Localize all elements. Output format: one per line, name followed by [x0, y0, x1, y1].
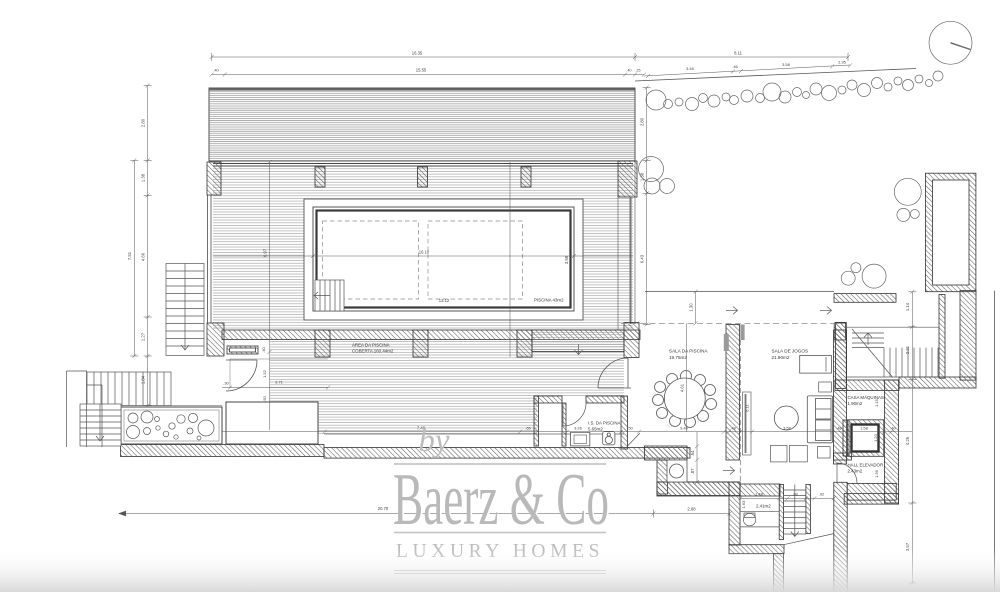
svg-text:SALA DE JOGOS: SALA DE JOGOS: [772, 349, 809, 354]
svg-text:3.58: 3.58: [782, 62, 791, 67]
svg-text:7.51: 7.51: [127, 251, 132, 260]
svg-text:by: by: [418, 423, 450, 459]
svg-text:.88: .88: [792, 491, 798, 496]
svg-text:.50: .50: [627, 426, 633, 431]
svg-text:1.52: 1.52: [262, 369, 267, 378]
svg-text:.46: .46: [732, 64, 738, 69]
svg-text:.40: .40: [261, 346, 266, 352]
svg-text:2.41m2: 2.41m2: [756, 504, 771, 509]
svg-text:3.98: 3.98: [564, 255, 569, 264]
svg-text:1.14: 1.14: [905, 302, 910, 311]
svg-text:19.75m2: 19.75m2: [669, 355, 687, 360]
svg-text:1.38: 1.38: [640, 172, 645, 181]
svg-text:13.12: 13.12: [439, 298, 450, 303]
svg-text:Baerz & Co: Baerz & Co: [393, 459, 609, 541]
svg-text:I.S. DA PISCINA: I.S. DA PISCINA: [588, 421, 621, 426]
svg-text:1.84: 1.84: [141, 375, 146, 384]
svg-text:.40: .40: [213, 68, 219, 73]
svg-text:6.11: 6.11: [745, 403, 750, 411]
svg-text:1.36: 1.36: [874, 469, 879, 478]
svg-text:2.80: 2.80: [640, 117, 645, 126]
svg-text:.50: .50: [262, 395, 267, 401]
svg-text:1.58: 1.58: [860, 426, 869, 431]
svg-text:2.88: 2.88: [687, 507, 696, 512]
svg-text:2.80: 2.80: [141, 118, 146, 127]
svg-text:.40: .40: [627, 69, 632, 73]
svg-text:.54: .54: [690, 450, 695, 456]
svg-text:2.21: 2.21: [905, 345, 910, 354]
svg-text:3.58: 3.58: [783, 426, 792, 431]
svg-text:6.43: 6.43: [640, 254, 645, 263]
svg-text:1.27: 1.27: [141, 332, 146, 341]
svg-text:.40: .40: [890, 426, 896, 431]
svg-text:8.11: 8.11: [734, 51, 743, 56]
svg-text:ÁREA DA PISCINA: ÁREA DA PISCINA: [352, 343, 390, 348]
svg-text:2.43m2: 2.43m2: [848, 469, 863, 474]
svg-text:SALA DA PISCINA: SALA DA PISCINA: [669, 349, 708, 354]
svg-text:4.26: 4.26: [905, 436, 910, 445]
svg-text:.48: .48: [836, 426, 842, 431]
svg-text:3.71: 3.71: [275, 380, 284, 385]
svg-text:1.90m2: 1.90m2: [848, 401, 863, 406]
svg-text:20.70: 20.70: [378, 506, 389, 511]
svg-text:9.46: 9.46: [680, 426, 689, 431]
svg-text:1.38: 1.38: [141, 173, 146, 182]
svg-text:1.63: 1.63: [741, 500, 746, 509]
svg-text:4.66: 4.66: [141, 252, 146, 261]
svg-text:21.90m2: 21.90m2: [772, 355, 790, 360]
svg-text:5.65m2: 5.65m2: [588, 427, 603, 432]
svg-text:PISCINA 43m2: PISCINA 43m2: [534, 298, 564, 303]
svg-text:4.61: 4.61: [680, 383, 685, 392]
svg-text:.48: .48: [730, 426, 736, 431]
svg-text:.92: .92: [819, 491, 825, 496]
svg-text:1.20: 1.20: [873, 433, 878, 442]
svg-text:3.46: 3.46: [686, 66, 695, 71]
svg-text:15.55: 15.55: [416, 68, 427, 73]
svg-text:.25: .25: [636, 69, 641, 73]
svg-text:16.35: 16.35: [412, 51, 423, 56]
svg-text:1.15: 1.15: [874, 398, 879, 407]
svg-text:3.26: 3.26: [574, 426, 583, 431]
svg-text:1.48: 1.48: [755, 491, 764, 496]
svg-text:.30: .30: [223, 381, 229, 386]
svg-text:16.10: 16.10: [419, 250, 430, 255]
svg-text:.87: .87: [690, 468, 695, 474]
svg-text:2.35: 2.35: [838, 60, 847, 65]
svg-text:COBERTA 160.44m2: COBERTA 160.44m2: [352, 349, 394, 354]
svg-text:HALL ELEVADOR: HALL ELEVADOR: [848, 463, 884, 468]
svg-text:1.30: 1.30: [689, 303, 694, 312]
svg-text:.65: .65: [525, 426, 531, 431]
